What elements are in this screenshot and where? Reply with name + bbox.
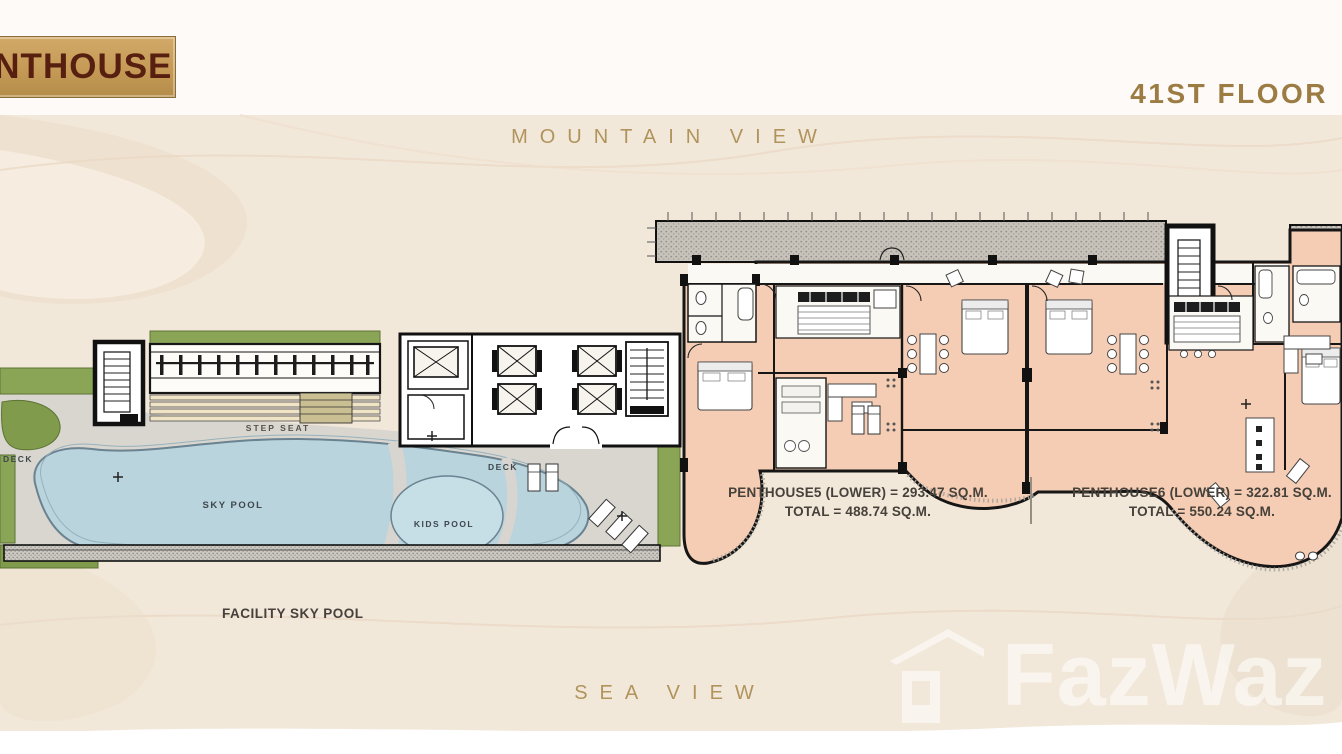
deck-label-right: DECK <box>488 462 518 472</box>
deck-label-left: DECK <box>3 454 33 464</box>
penthouse5-total-line: TOTAL = 488.74 SQ.M. <box>728 502 988 521</box>
unit5-closet <box>776 378 826 468</box>
planter-strip-core-right <box>658 438 680 546</box>
kids-pool-label: KIDS POOL <box>414 519 474 529</box>
planter-strip-gym <box>150 331 380 344</box>
facility-wing <box>0 331 680 568</box>
bed-unit5-master <box>962 300 1008 354</box>
penthouse6-area-label: PENTHOUSE6 (LOWER) = 322.81 SQ.M. TOTAL … <box>1072 483 1332 521</box>
penthouse6-total-line: TOTAL = 550.24 SQ.M. <box>1072 502 1332 521</box>
facility-stair-tower <box>95 342 143 424</box>
penthouse5-area-line: PENTHOUSE5 (LOWER) = 293.47 SQ.M. <box>728 483 988 502</box>
sea-view-label: SEA VIEW <box>574 682 766 705</box>
elevator-core <box>400 334 680 449</box>
floorplan-page: FazWaz PENTHOUSE 41ST FLOOR MOUNTAIN VIE… <box>0 0 1342 754</box>
kids-pool <box>391 476 503 556</box>
watermark-logo: FazWaz <box>888 624 1327 726</box>
mountain-view-label: MOUNTAIN VIEW <box>511 126 829 149</box>
penthouse6-area-line: PENTHOUSE6 (LOWER) = 322.81 SQ.M. <box>1072 483 1332 502</box>
gym-pavilion <box>150 344 380 423</box>
bed-unit5-left <box>698 362 752 410</box>
step-seat-label: STEP SEAT <box>246 423 310 433</box>
floor-label: 41ST FLOOR <box>1130 78 1328 110</box>
penthouse5-area-label: PENTHOUSE5 (LOWER) = 293.47 SQ.M. TOTAL … <box>728 483 988 521</box>
planter-strip-left <box>0 455 15 543</box>
watermark-text: FazWaz <box>1002 624 1327 726</box>
bed-unit6-master <box>1046 300 1092 354</box>
sky-pool-label: SKY POOL <box>203 500 264 511</box>
facility-caption: FACILITY SKY POOL <box>222 606 364 621</box>
parapet-band <box>4 545 660 561</box>
unit5-kitchen <box>776 286 900 338</box>
unit6-kitchen <box>1169 296 1253 358</box>
unit5-bathroom <box>688 284 756 342</box>
watermark-house-icon <box>888 627 992 723</box>
core-stair <box>626 342 668 416</box>
unit-label-divider <box>1030 477 1032 524</box>
planter-strip-top-left <box>0 368 100 394</box>
penthouse-badge: PENTHOUSE <box>0 36 176 98</box>
